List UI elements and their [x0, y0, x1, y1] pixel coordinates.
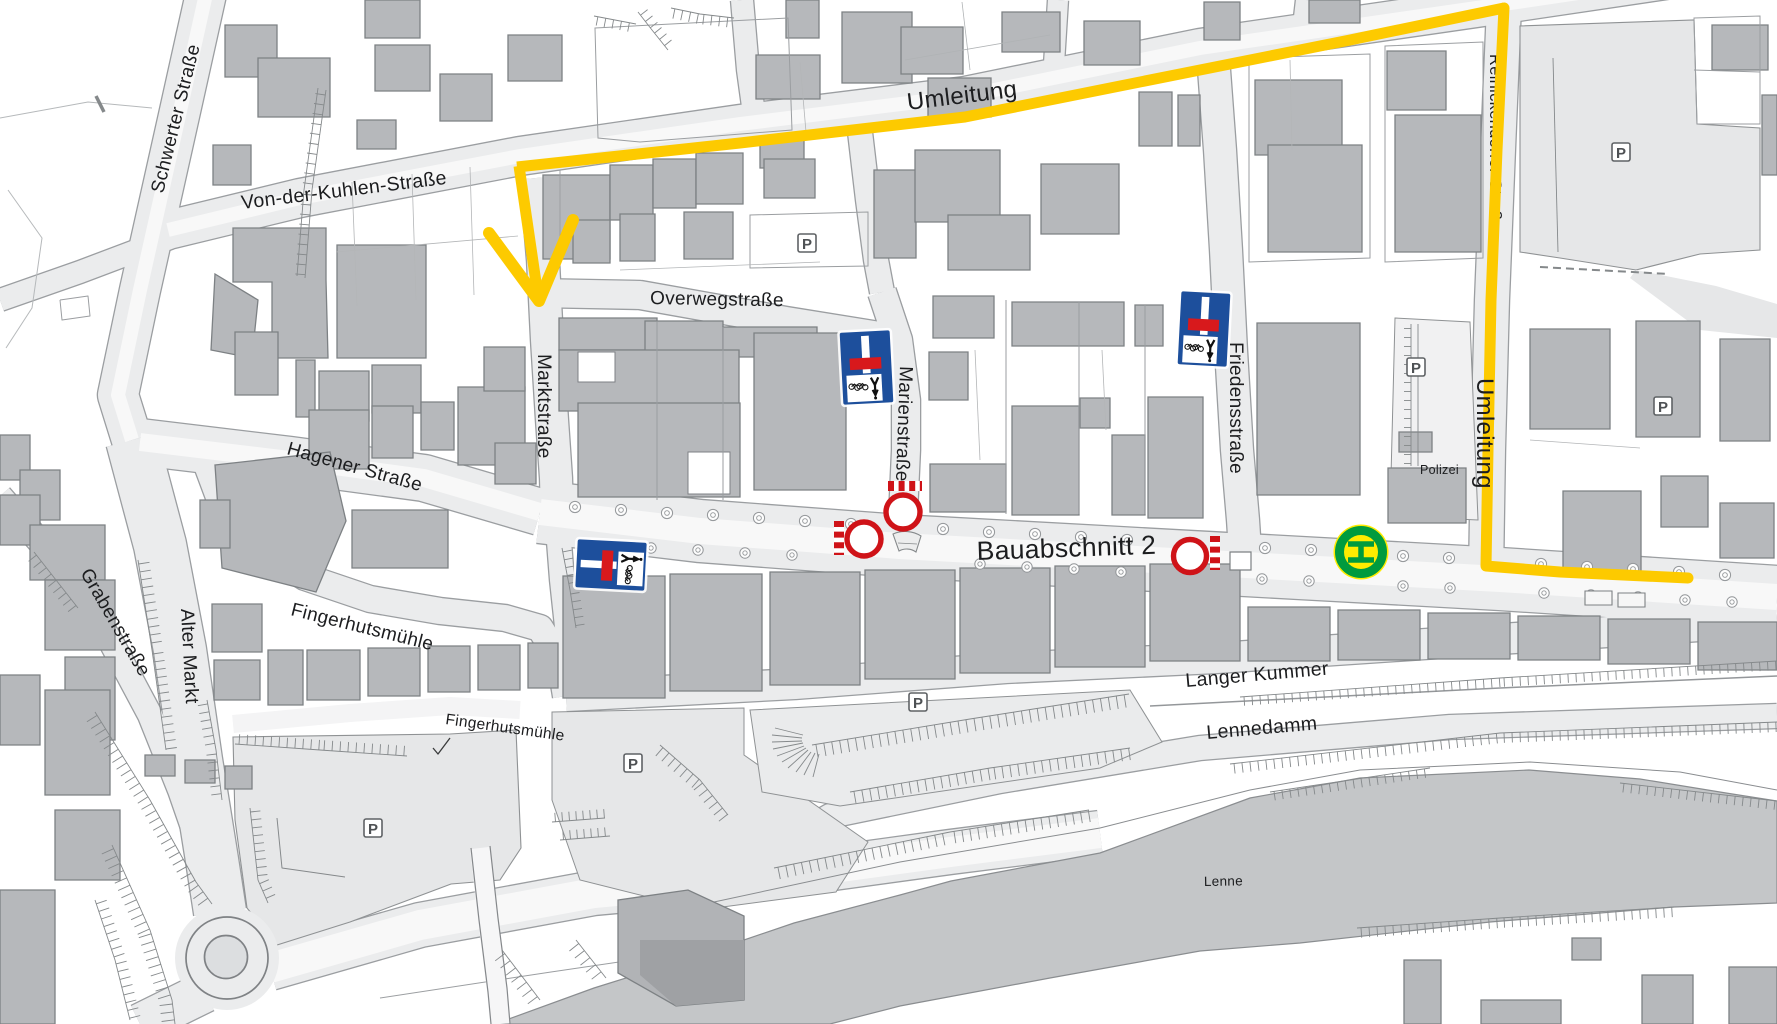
- svg-text:Umleitung: Umleitung: [1471, 378, 1498, 489]
- svg-text:P: P: [1616, 145, 1626, 162]
- svg-text:Lenne: Lenne: [1204, 873, 1243, 889]
- svg-text:P: P: [1658, 399, 1668, 416]
- svg-text:Overwegstraße: Overwegstraße: [650, 288, 784, 311]
- svg-text:P: P: [913, 695, 923, 712]
- svg-text:Bauabschnitt 2: Bauabschnitt 2: [976, 530, 1156, 566]
- svg-text:Polizei: Polizei: [1420, 463, 1459, 477]
- svg-text:Marktstraße: Marktstraße: [533, 354, 554, 459]
- svg-text:P: P: [802, 236, 812, 253]
- svg-text:P: P: [368, 821, 378, 838]
- svg-text:Friedensstraße: Friedensstraße: [1225, 342, 1246, 474]
- svg-text:P: P: [628, 756, 638, 773]
- svg-text:Marienstraße: Marienstraße: [891, 366, 916, 482]
- svg-text:P: P: [1411, 360, 1421, 377]
